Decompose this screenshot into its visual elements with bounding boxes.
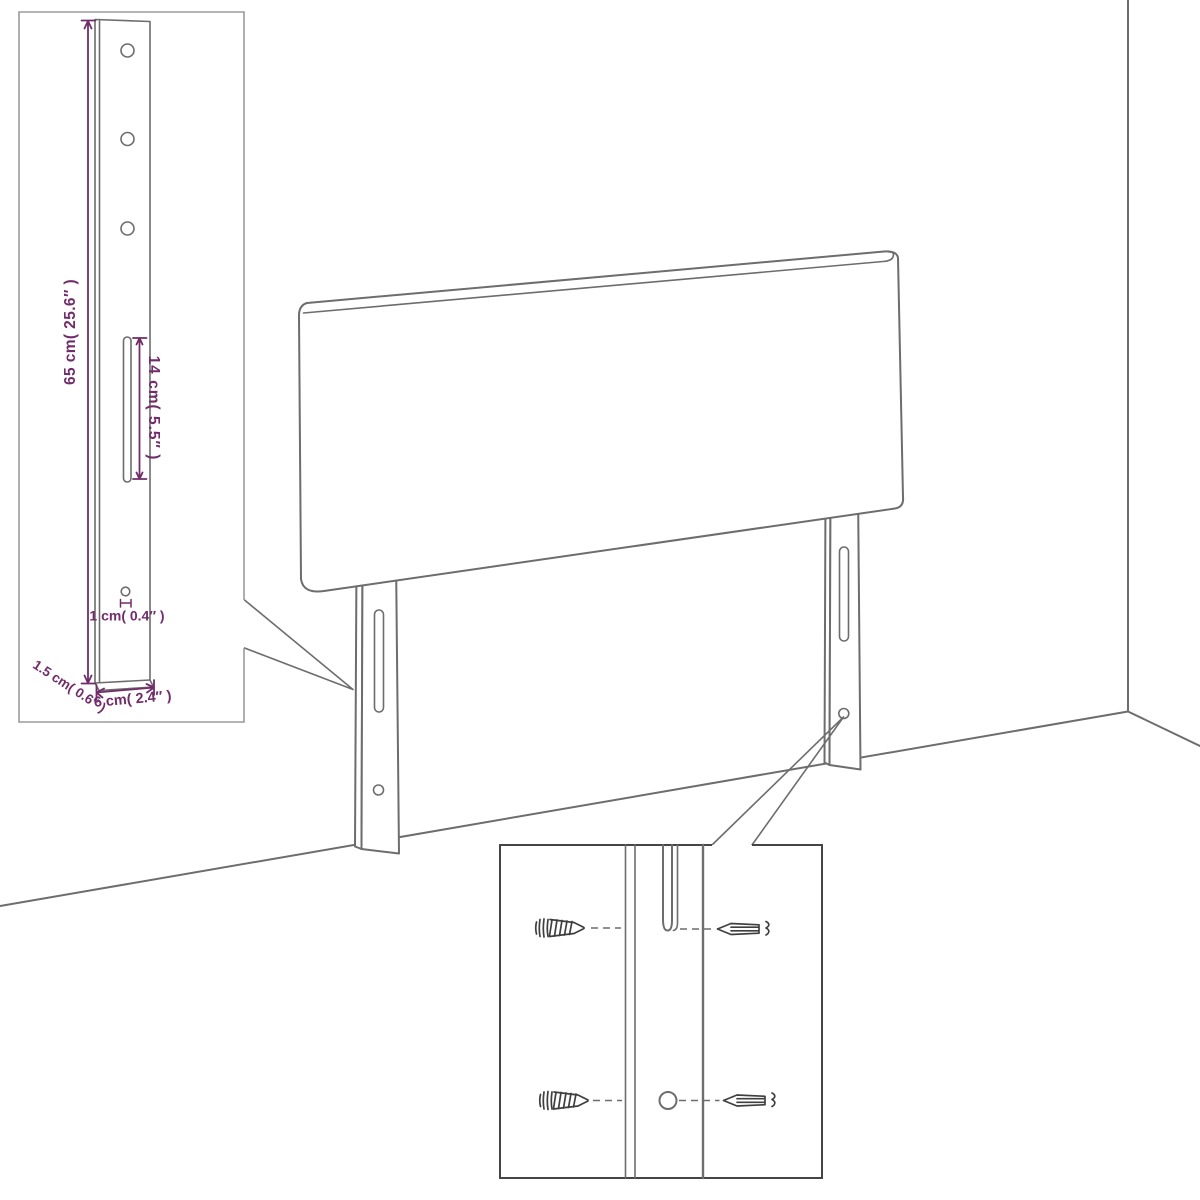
height-dimension-label: 65 cm( 25.6″ ) [62,279,79,385]
callout-lines [712,717,844,845]
callout-left-leg [245,600,354,690]
leg-slot [840,547,849,641]
floor-line-right [1128,712,1200,747]
mount-detail-inset [500,845,822,1178]
callout-mount-detail [712,717,844,845]
leg-slot [375,610,384,712]
leg-screw-hole [374,785,384,795]
assembly-diagram: 65 cm( 25.6″ ) 14 cm( 5.5″ ) 1 cm( 0.4″ … [0,0,1200,1200]
diagram-canvas: 65 cm( 25.6″ ) 14 cm( 5.5″ ) 1 cm( 0.4″ … [0,0,1200,1200]
hole-dimension-label: 1 cm( 0.4″ ) [89,608,164,624]
headboard-panel [299,251,903,591]
inset-background [500,845,822,1178]
headboard-leg-right [825,488,861,770]
bracket-dimension-inset: 65 cm( 25.6″ ) 14 cm( 5.5″ ) 1 cm( 0.4″ … [19,12,244,722]
slot-dimension-label: 14 cm( 5.5″ ) [145,356,162,461]
callout-lines [245,600,354,690]
headboard-leg-left [355,556,399,854]
panel-face [299,251,903,591]
